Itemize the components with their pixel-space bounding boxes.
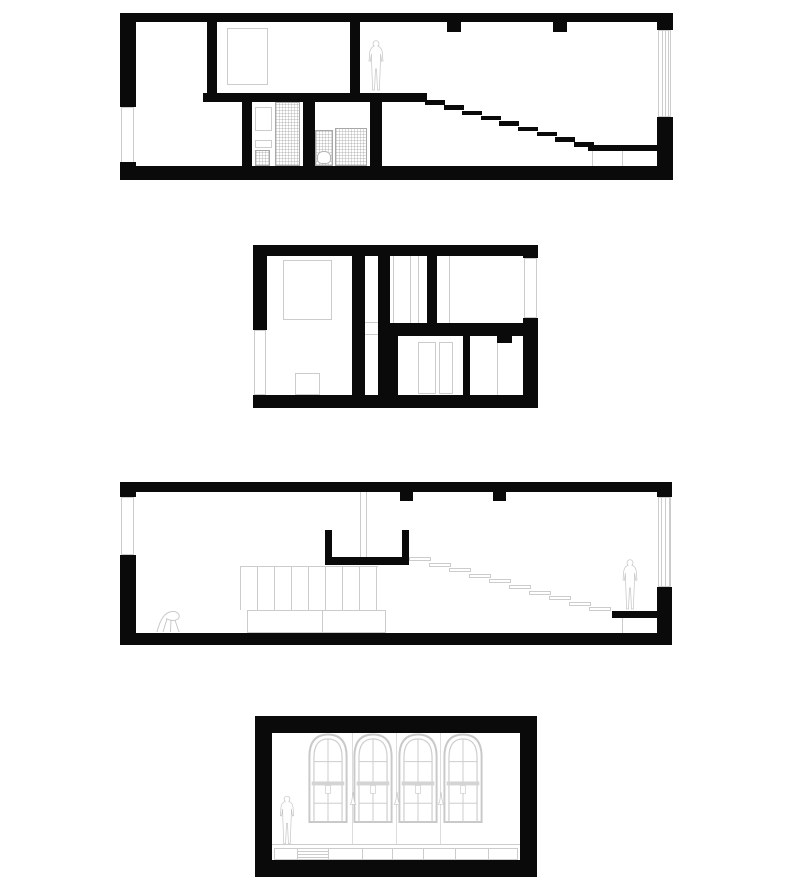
wall-segment <box>120 555 136 633</box>
stair-tread <box>444 105 464 110</box>
plinth-line <box>622 151 623 166</box>
ceiling-beam <box>400 492 413 501</box>
panel-line <box>342 566 343 610</box>
human-figure <box>366 38 386 93</box>
wall-segment <box>253 245 267 330</box>
floor-slab <box>588 145 658 151</box>
stair-tread <box>589 607 611 611</box>
door-panel <box>418 342 436 394</box>
stair-tread <box>537 132 557 137</box>
wall-segment <box>657 587 672 633</box>
bathroom-shelf <box>255 140 272 148</box>
cabinet-divider <box>488 848 489 860</box>
window-right <box>524 258 537 318</box>
stair-tread <box>549 596 571 600</box>
arched-window <box>308 732 348 823</box>
wall-seam-line <box>440 733 441 845</box>
ceiling-beam <box>447 22 461 32</box>
drawer-line <box>297 851 328 852</box>
stair-tread <box>509 585 531 589</box>
arched-window <box>353 732 393 823</box>
wall-segment <box>120 162 136 180</box>
cabinet-divider <box>392 848 393 860</box>
wall-segment <box>242 102 252 166</box>
ceiling-beam <box>553 22 567 32</box>
counter-divider <box>322 610 323 633</box>
stair-tread <box>449 568 471 572</box>
wall-segment <box>657 117 673 180</box>
cabinet-divider <box>328 848 329 860</box>
wall-seam-line <box>396 733 397 845</box>
panel-line <box>240 566 241 610</box>
human-figure <box>620 558 640 611</box>
plinth-line <box>592 151 593 166</box>
wall-segment <box>120 13 136 107</box>
panel-line <box>325 566 326 610</box>
panel-line <box>376 566 377 610</box>
room-partition-line <box>449 256 450 323</box>
stair-tread <box>529 591 551 595</box>
wall-segment <box>255 716 537 733</box>
wall-segment <box>207 22 217 97</box>
wall-segment <box>352 256 365 395</box>
stair-tread <box>481 116 501 121</box>
arched-window <box>398 732 438 823</box>
stair-tread <box>499 121 519 126</box>
cabinet-divider <box>362 848 363 860</box>
wall-segment <box>303 102 315 166</box>
wall-segment <box>120 633 672 645</box>
toilet <box>317 151 331 164</box>
pendant-lamp <box>393 792 401 805</box>
stair-guard <box>325 530 332 557</box>
counter <box>247 610 386 633</box>
wall-segment <box>378 336 398 395</box>
drawer-line <box>297 854 328 855</box>
window-mullion-line <box>665 30 666 117</box>
section-upper-drawing <box>120 13 673 180</box>
plinth-line <box>622 618 623 633</box>
tiled-partition <box>275 102 300 166</box>
stair-tread <box>555 137 575 142</box>
closet-partition-line <box>418 256 419 323</box>
platform-slab <box>612 611 658 618</box>
corridor-line <box>365 334 378 335</box>
closet-partition-line <box>410 256 411 323</box>
stair-hanger-line <box>366 492 367 557</box>
wall-segment <box>120 13 673 22</box>
window-mullion-line <box>662 30 663 117</box>
window-mullion-line <box>661 497 662 587</box>
wall-segment <box>253 245 538 256</box>
stair-tread <box>469 574 491 578</box>
wall-segment <box>253 395 538 408</box>
stair-tread <box>518 127 538 132</box>
wall-segment <box>255 860 537 877</box>
stair-tread <box>569 602 591 606</box>
wall-segment <box>255 716 272 877</box>
wall-segment <box>657 13 673 30</box>
closet-partition-line <box>393 256 394 323</box>
room-partition-line <box>497 343 498 395</box>
bed <box>227 28 268 85</box>
human-figure <box>277 795 297 845</box>
window-mullion-line <box>665 497 666 587</box>
panel-line <box>274 566 275 610</box>
panel-line <box>308 566 309 610</box>
counter-top-line <box>272 844 520 845</box>
window-mullion-line <box>668 30 669 117</box>
wall-segment <box>378 323 523 336</box>
wall-segment <box>657 482 672 497</box>
wall-segment <box>370 102 382 166</box>
stair-tread <box>409 557 431 561</box>
window-left <box>121 107 134 163</box>
panel-line <box>257 566 258 610</box>
wall-segment <box>523 318 538 408</box>
floor-plan-drawing <box>253 245 538 408</box>
wall-segment <box>520 716 537 877</box>
wall-segment <box>523 245 538 258</box>
drawer-line <box>297 857 328 858</box>
panel-line <box>359 566 360 610</box>
tiled-partition <box>335 128 367 166</box>
section-lower-drawing <box>120 482 672 645</box>
wall-segment <box>120 482 136 497</box>
wall-segment <box>378 256 390 323</box>
wall-segment <box>120 482 672 492</box>
alcove <box>295 373 320 395</box>
pendant-lamp <box>437 792 445 805</box>
stair-landing <box>325 557 409 565</box>
bathroom-tiled-base <box>255 150 270 166</box>
window-left <box>254 330 266 395</box>
bed <box>283 260 332 320</box>
floor-slab <box>203 93 427 102</box>
wall-segment <box>120 166 673 180</box>
bathroom-mirror-cabinet <box>255 107 272 131</box>
panel-top-line <box>240 566 378 567</box>
stair-tread <box>462 111 482 116</box>
ceiling-beam <box>493 492 506 501</box>
pendant-lamp <box>349 792 357 805</box>
window-left <box>121 497 134 555</box>
wall-segment <box>463 336 470 395</box>
stair-guard <box>402 530 409 557</box>
interior-elevation-drawing <box>255 716 537 877</box>
cabinet-divider <box>455 848 456 860</box>
door-panel <box>439 342 453 394</box>
lounge-chair <box>152 606 190 633</box>
wall-notch <box>497 336 512 343</box>
stair-tread <box>425 100 445 105</box>
wall-segment <box>350 22 360 97</box>
stair-tread <box>489 579 511 583</box>
window-mullion-line <box>669 497 670 587</box>
panel-line <box>291 566 292 610</box>
stair-hanger-line <box>360 492 361 557</box>
arched-window <box>443 732 483 823</box>
stair-tread <box>429 563 451 567</box>
cabinet-divider <box>423 848 424 860</box>
corridor-line <box>365 322 378 323</box>
drawing-sheet <box>0 0 800 893</box>
wall-segment <box>427 256 437 323</box>
